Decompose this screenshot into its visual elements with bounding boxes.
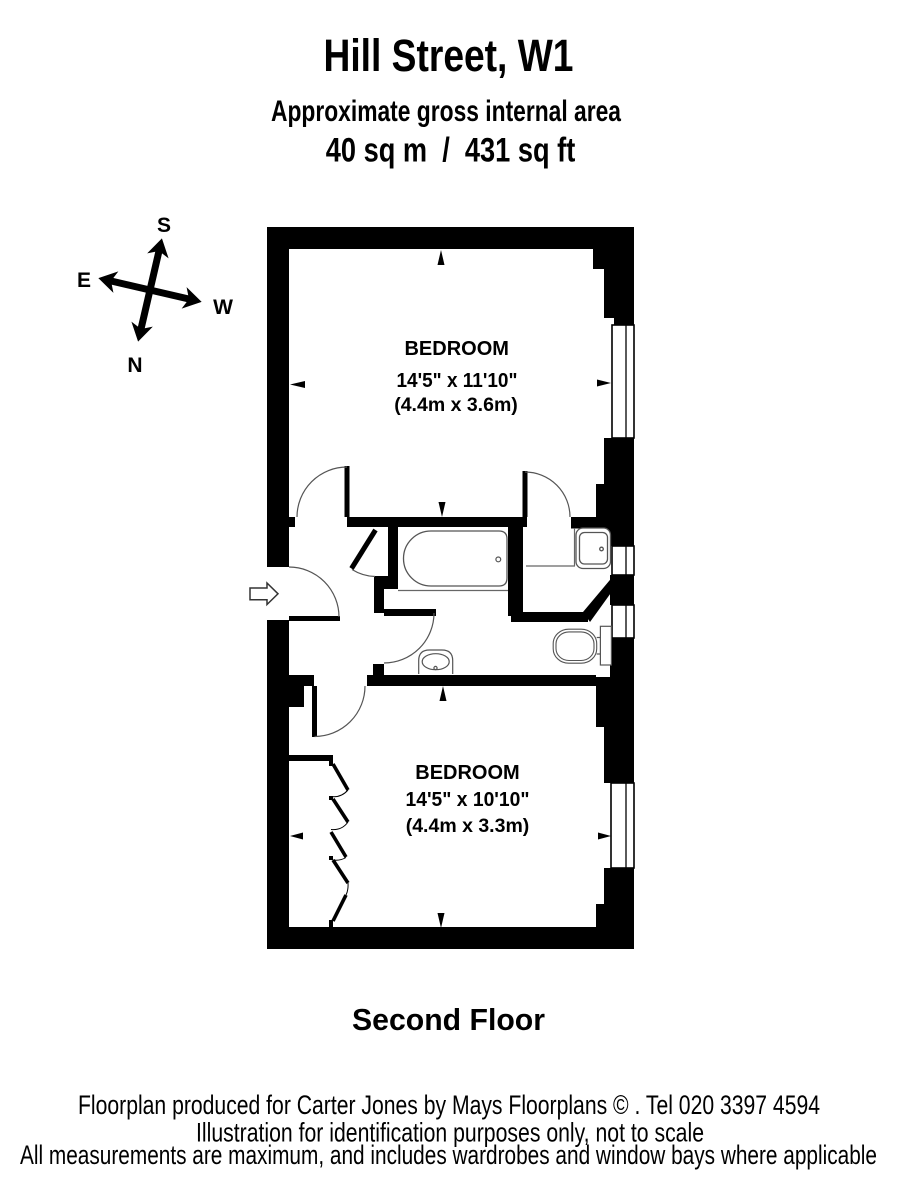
svg-text:N: N <box>127 354 142 377</box>
svg-text:S: S <box>157 214 171 237</box>
svg-text:BEDROOM: BEDROOM <box>404 338 508 360</box>
svg-text:Hill Street, W1: Hill Street, W1 <box>324 30 574 81</box>
svg-text:W: W <box>213 296 233 319</box>
svg-text:BEDROOM: BEDROOM <box>415 762 519 784</box>
svg-text:All measurements are maximum,: All measurements are maximum, and includ… <box>20 1140 877 1170</box>
svg-text:40 sq m / 431 sq ft: 40 sq m / 431 sq ft <box>326 132 576 170</box>
svg-text:Floorplan produced for Carter: Floorplan produced for Carter Jones by M… <box>78 1090 820 1120</box>
svg-text:Approximate gross internal are: Approximate gross internal area <box>271 95 621 128</box>
svg-text:(4.4m x 3.6m): (4.4m x 3.6m) <box>394 394 518 416</box>
svg-text:E: E <box>77 269 91 292</box>
svg-text:14'5" x 10'10": 14'5" x 10'10" <box>406 788 530 811</box>
svg-text:Second Floor: Second Floor <box>352 1002 545 1037</box>
svg-text:14'5" x 11'10": 14'5" x 11'10" <box>397 369 518 392</box>
svg-text:(4.4m x 3.3m): (4.4m x 3.3m) <box>406 815 530 837</box>
